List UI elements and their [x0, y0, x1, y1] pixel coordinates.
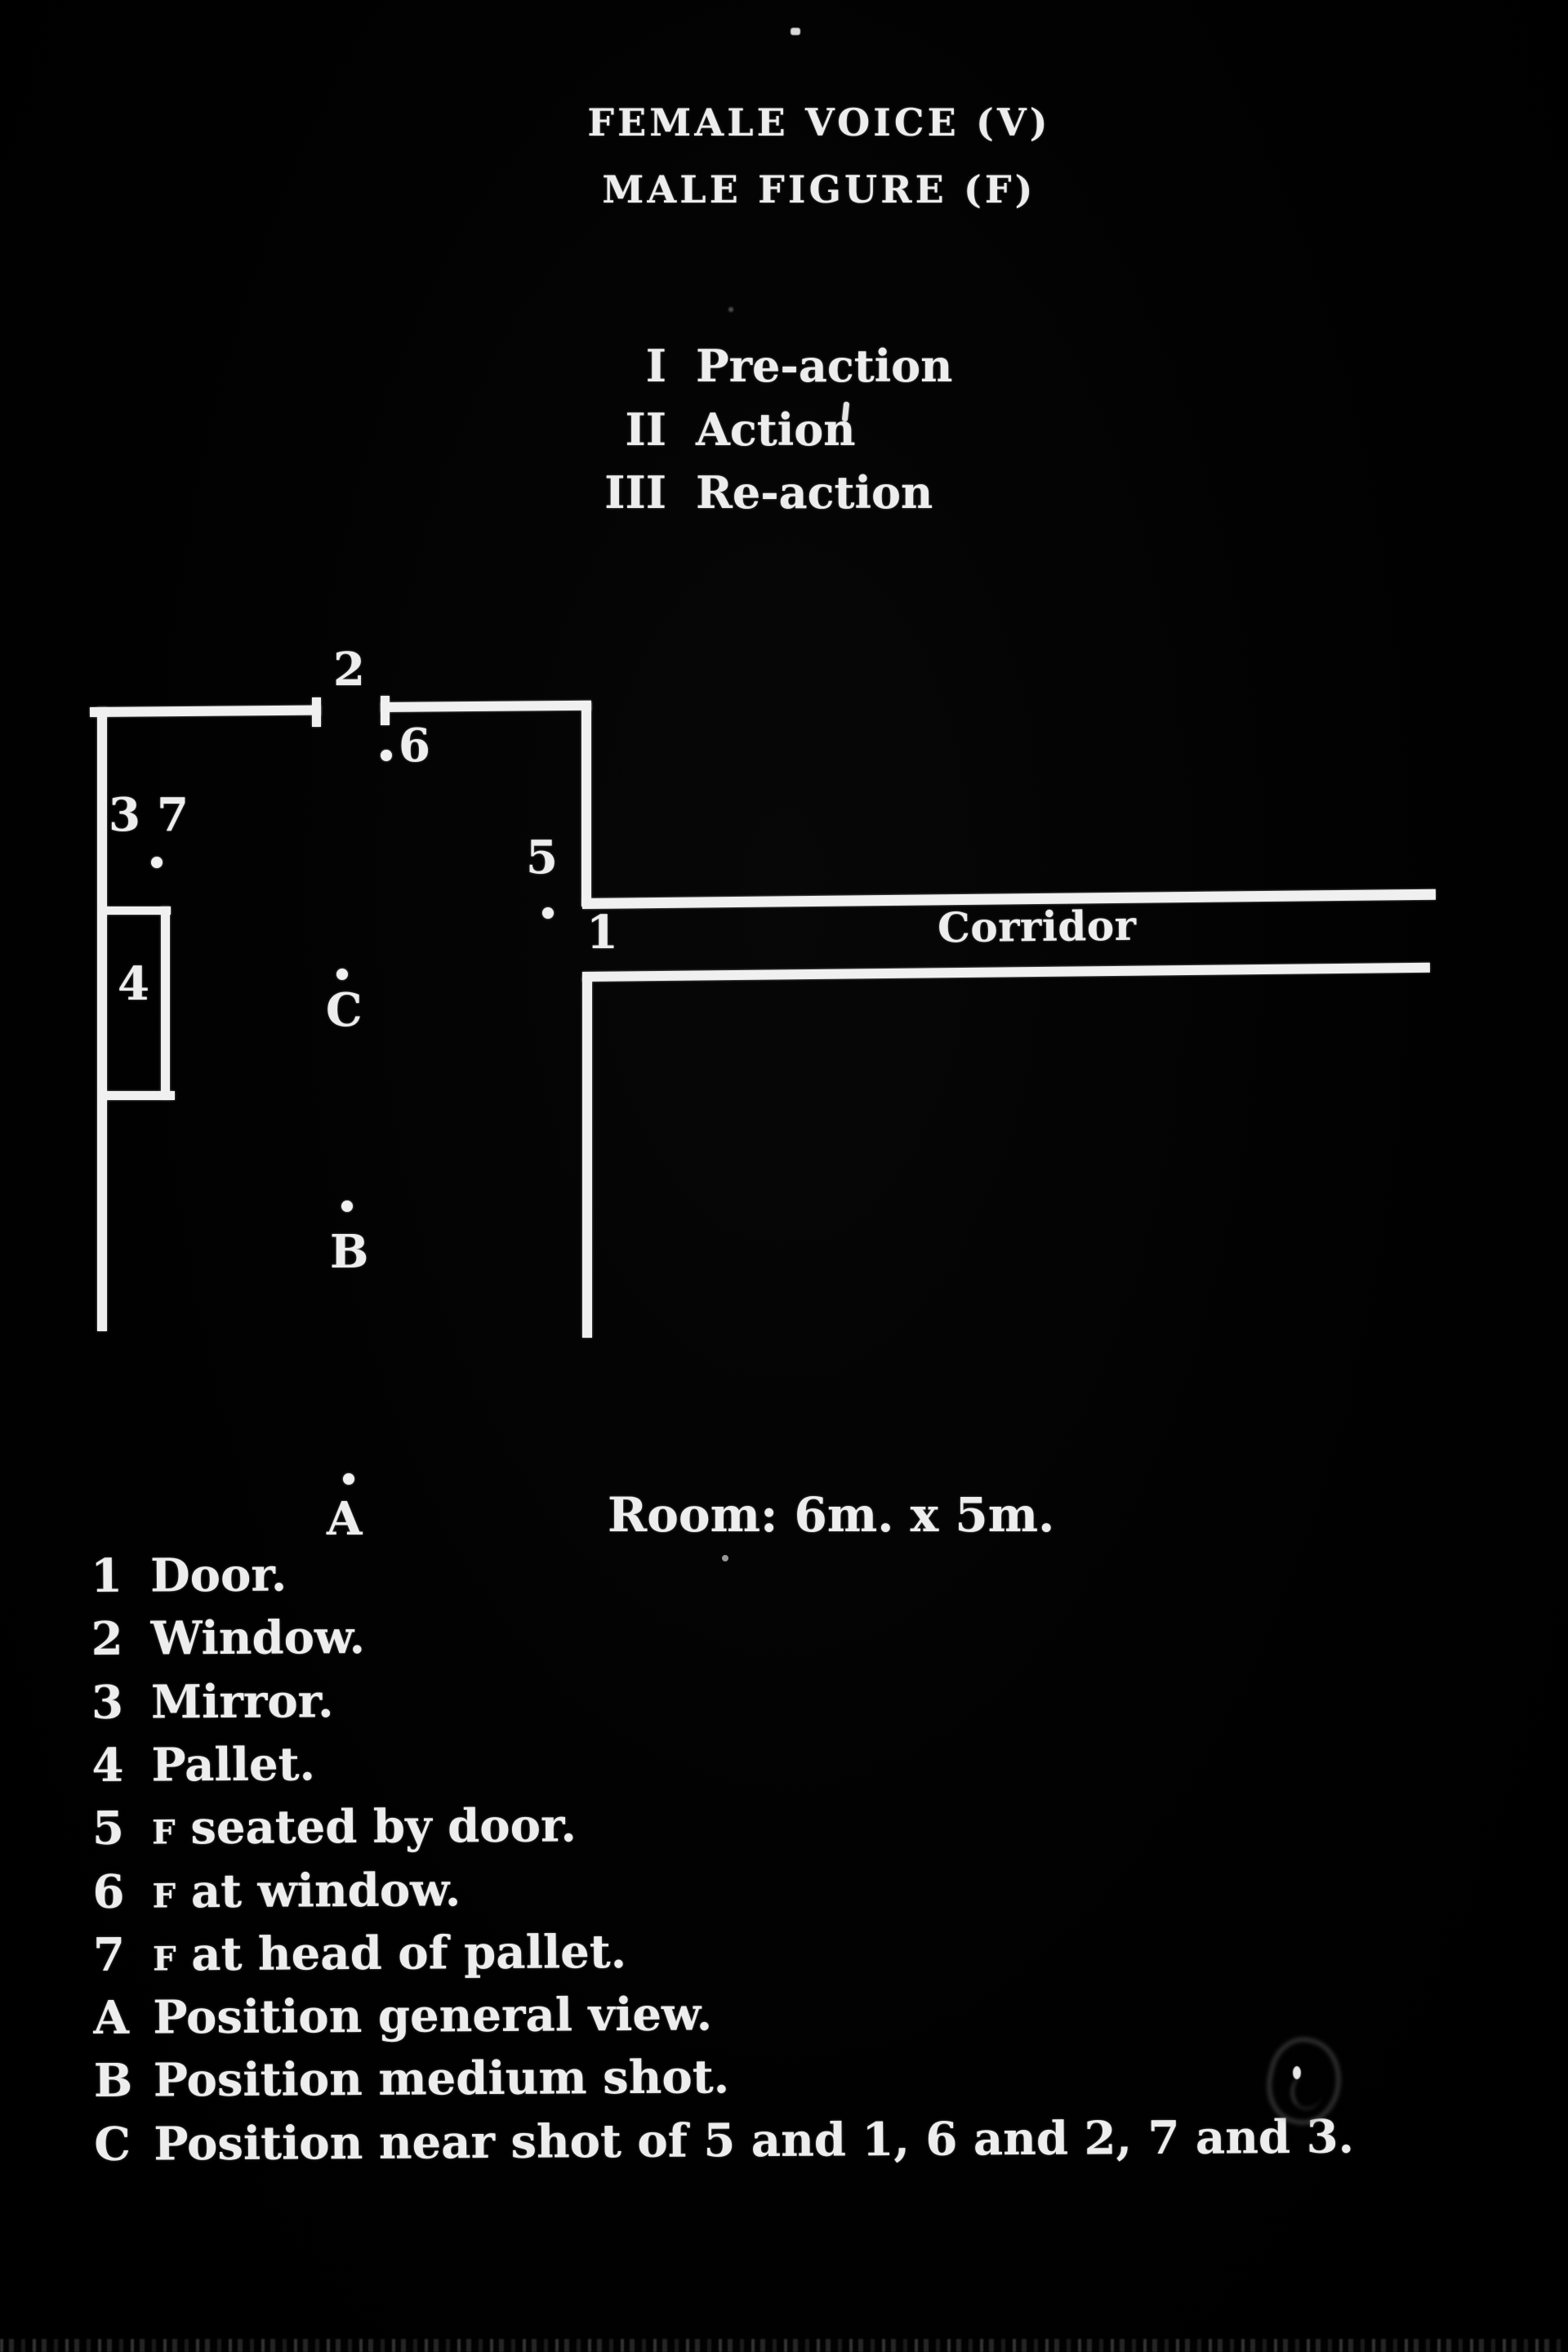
legend-item-text: Pallet. — [151, 1741, 315, 1788]
legend-item-key: C — [94, 2121, 131, 2167]
smudge-mark-inner — [1290, 2074, 1322, 2110]
legend-item-text: Position medium shot. — [154, 2055, 730, 2104]
legend-item-5: 5 Fseated by door. — [2, 1797, 1568, 1865]
figure-initial: F — [153, 1939, 177, 1978]
legend-item-key: B — [94, 2058, 133, 2104]
bottom-edge-artifact — [0, 2339, 1568, 2352]
legend-item-text: Fat head of pallet. — [153, 1929, 627, 1978]
legend-item-text: Fseated by door. — [152, 1803, 577, 1851]
legend-item-text: Window. — [150, 1615, 365, 1662]
figure-initial: F — [152, 1876, 176, 1915]
legend: 1 Door. 2 Window. 3 Mirror. 4 Pallet. 5 … — [0, 0, 1568, 2352]
legend-item-key: 6 — [92, 1869, 124, 1914]
film-speck-room-line — [722, 1555, 728, 1561]
legend-item-text: Mirror. — [151, 1678, 334, 1725]
legend-item-text: Door. — [150, 1552, 287, 1599]
legend-item-key: 3 — [91, 1679, 123, 1725]
legend-item-1: 1 Door. — [0, 1544, 1568, 1613]
legend-item-key: 4 — [91, 1743, 123, 1788]
legend-item-key: 7 — [93, 1932, 125, 1978]
legend-item-text: Position general view. — [153, 1991, 712, 2040]
legend-item-A: A Position general view. — [2, 1986, 1568, 2055]
legend-item-key: 2 — [91, 1616, 122, 1662]
legend-item-text: Position near shot of 5 and 1, 6 and 2, … — [154, 2114, 1354, 2167]
legend-item-key: 5 — [92, 1806, 124, 1851]
legend-item-text: Fat window. — [152, 1867, 461, 1914]
smudge-bright-spot — [1293, 2066, 1301, 2079]
film-speck-middle — [728, 307, 733, 312]
legend-item-6: 6 Fat window. — [2, 1860, 1568, 1928]
figure-initial: F — [152, 1813, 176, 1852]
legend-item-2: 2 Window. — [0, 1607, 1568, 1676]
legend-item-3: 3 Mirror. — [1, 1671, 1568, 1739]
legend-item-4: 4 Pallet. — [1, 1734, 1568, 1802]
legend-item-C: C Position near shot of 5 and 1, 6 and 2… — [3, 2113, 1568, 2181]
legend-item-key: 1 — [91, 1553, 122, 1599]
film-speck-top — [791, 28, 800, 35]
scanned-script-page: FEMALE VOICE (V) MALE FIGURE (F) I Pre-a… — [0, 0, 1568, 2352]
legend-item-key: A — [93, 1995, 129, 2041]
legend-item-7: 7 Fat head of pallet. — [2, 1923, 1568, 1992]
